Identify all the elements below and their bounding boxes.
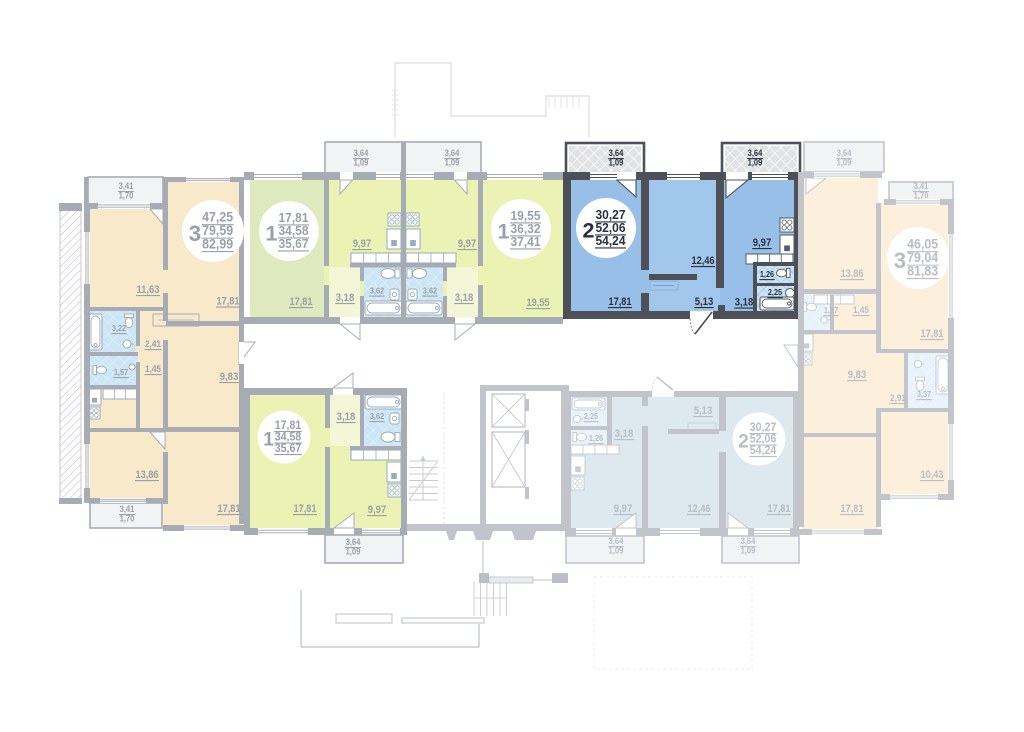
svg-text:1: 1 bbox=[498, 220, 510, 244]
svg-text:1,70: 1,70 bbox=[914, 191, 929, 201]
svg-text:1: 1 bbox=[263, 429, 274, 450]
svg-text:3,18: 3,18 bbox=[735, 297, 754, 309]
svg-text:30,27: 30,27 bbox=[750, 422, 777, 434]
svg-text:3,64: 3,64 bbox=[837, 148, 852, 158]
svg-text:1,09: 1,09 bbox=[837, 158, 852, 168]
svg-text:3,64: 3,64 bbox=[354, 148, 369, 158]
svg-text:1,70: 1,70 bbox=[120, 514, 135, 524]
svg-text:9,97: 9,97 bbox=[353, 238, 372, 250]
svg-text:3,64: 3,64 bbox=[609, 536, 624, 546]
svg-text:12,46: 12,46 bbox=[687, 503, 710, 515]
svg-text:17,81: 17,81 bbox=[767, 503, 790, 515]
svg-text:17,81: 17,81 bbox=[608, 296, 631, 308]
svg-text:1,09: 1,09 bbox=[609, 158, 624, 168]
svg-text:2,25: 2,25 bbox=[584, 411, 599, 421]
svg-text:17,81: 17,81 bbox=[289, 296, 312, 308]
svg-text:35,67: 35,67 bbox=[275, 443, 302, 455]
svg-text:1,45: 1,45 bbox=[145, 364, 162, 375]
svg-text:3: 3 bbox=[189, 221, 201, 246]
svg-text:1,26: 1,26 bbox=[760, 269, 775, 279]
svg-text:1,09: 1,09 bbox=[445, 158, 460, 168]
svg-text:3,64: 3,64 bbox=[741, 536, 756, 546]
svg-text:81,83: 81,83 bbox=[907, 264, 938, 279]
svg-text:1,09: 1,09 bbox=[741, 546, 756, 556]
svg-text:3,62: 3,62 bbox=[423, 286, 438, 296]
svg-text:1,09: 1,09 bbox=[346, 547, 361, 557]
svg-text:11,63: 11,63 bbox=[136, 284, 159, 296]
svg-text:3,41: 3,41 bbox=[120, 504, 135, 514]
svg-text:17,81: 17,81 bbox=[275, 420, 302, 432]
svg-text:12,46: 12,46 bbox=[691, 255, 714, 267]
svg-text:35,67: 35,67 bbox=[279, 236, 309, 251]
svg-text:9,83: 9,83 bbox=[848, 369, 867, 381]
svg-text:1,57: 1,57 bbox=[824, 305, 839, 315]
svg-text:17,81: 17,81 bbox=[293, 503, 316, 515]
svg-text:37,41: 37,41 bbox=[511, 234, 541, 249]
svg-text:1,09: 1,09 bbox=[354, 158, 369, 168]
svg-text:19,55: 19,55 bbox=[526, 297, 549, 309]
svg-text:1: 1 bbox=[266, 222, 278, 246]
svg-text:3,62: 3,62 bbox=[370, 411, 385, 421]
svg-text:3,22: 3,22 bbox=[112, 323, 127, 333]
svg-text:3,18: 3,18 bbox=[615, 428, 634, 440]
svg-text:3,18: 3,18 bbox=[336, 292, 355, 304]
svg-text:5,13: 5,13 bbox=[694, 405, 713, 417]
svg-text:17,81: 17,81 bbox=[840, 503, 863, 515]
svg-text:2,91: 2,91 bbox=[890, 393, 907, 404]
svg-text:1,26: 1,26 bbox=[589, 433, 604, 443]
svg-text:3,41: 3,41 bbox=[119, 181, 134, 191]
svg-text:2,41: 2,41 bbox=[145, 339, 162, 350]
svg-text:1,45: 1,45 bbox=[853, 305, 870, 316]
svg-text:9,97: 9,97 bbox=[368, 504, 387, 516]
svg-text:2,25: 2,25 bbox=[768, 287, 783, 297]
svg-text:3,37: 3,37 bbox=[917, 389, 932, 399]
svg-text:52,06: 52,06 bbox=[750, 434, 777, 446]
svg-text:10,43: 10,43 bbox=[920, 469, 943, 481]
svg-text:3,64: 3,64 bbox=[445, 148, 460, 158]
svg-text:3,64: 3,64 bbox=[609, 148, 624, 158]
svg-text:9,97: 9,97 bbox=[614, 503, 633, 515]
svg-text:34,58: 34,58 bbox=[275, 432, 302, 444]
svg-text:17,81: 17,81 bbox=[920, 328, 943, 340]
svg-text:54,24: 54,24 bbox=[750, 445, 777, 457]
svg-text:82,99: 82,99 bbox=[202, 237, 233, 252]
svg-text:2: 2 bbox=[583, 219, 595, 243]
svg-text:13,86: 13,86 bbox=[840, 268, 863, 280]
svg-text:17,81: 17,81 bbox=[217, 503, 240, 515]
svg-text:3: 3 bbox=[894, 248, 906, 273]
svg-text:1,09: 1,09 bbox=[748, 158, 763, 168]
svg-text:9,97: 9,97 bbox=[458, 238, 477, 250]
svg-text:9,83: 9,83 bbox=[220, 371, 239, 383]
svg-text:3,41: 3,41 bbox=[914, 181, 929, 191]
svg-text:1,57: 1,57 bbox=[114, 367, 129, 377]
svg-text:1,70: 1,70 bbox=[119, 191, 134, 201]
svg-text:3,18: 3,18 bbox=[455, 292, 474, 304]
svg-text:17,81: 17,81 bbox=[216, 296, 239, 308]
svg-text:54,24: 54,24 bbox=[596, 233, 627, 248]
svg-text:3,18: 3,18 bbox=[337, 411, 356, 423]
svg-text:13,86: 13,86 bbox=[135, 469, 158, 481]
svg-text:3,64: 3,64 bbox=[346, 537, 361, 547]
svg-text:9,97: 9,97 bbox=[753, 237, 772, 249]
svg-text:1,09: 1,09 bbox=[609, 546, 624, 556]
svg-text:3,62: 3,62 bbox=[370, 286, 385, 296]
svg-text:2: 2 bbox=[738, 431, 749, 452]
svg-text:3,64: 3,64 bbox=[748, 148, 763, 158]
svg-text:5,13: 5,13 bbox=[695, 296, 714, 308]
